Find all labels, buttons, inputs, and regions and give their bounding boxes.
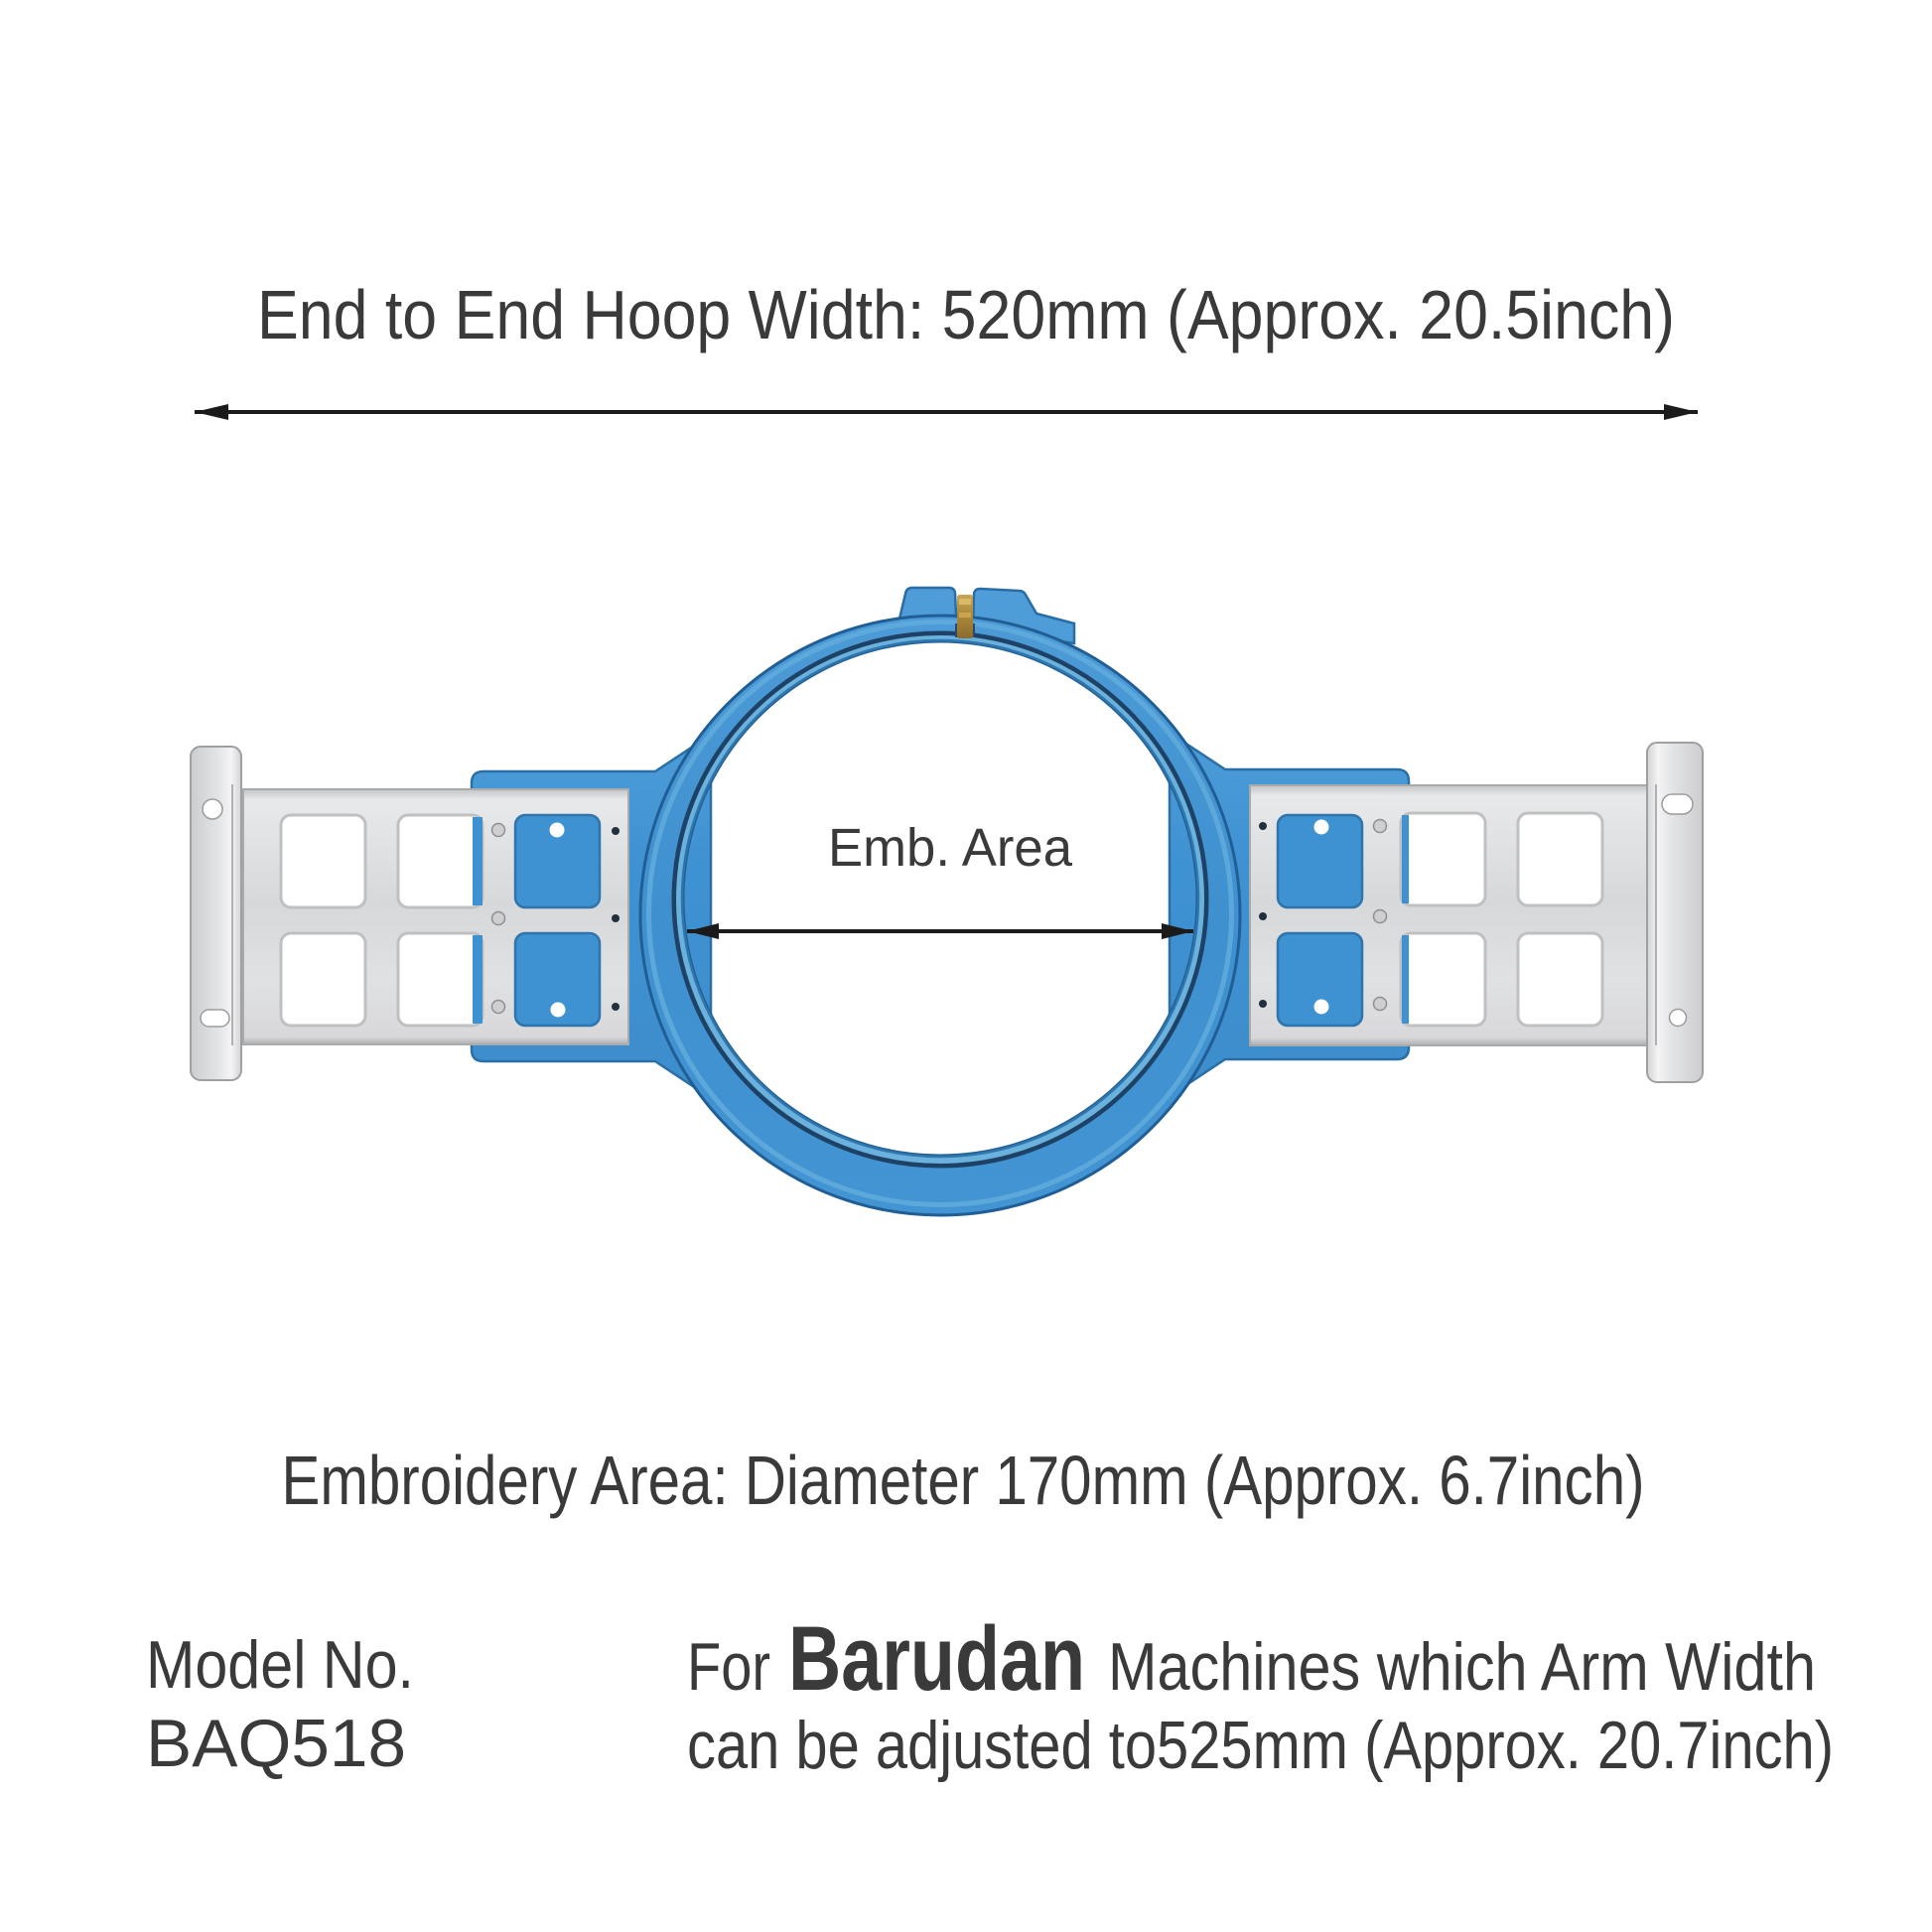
svg-text:Barudan: Barudan	[788, 1608, 1085, 1710]
svg-text:Machines which Arm Width: Machines which Arm Width	[1108, 1629, 1816, 1705]
svg-text:Emb. Area: Emb. Area	[828, 818, 1073, 878]
svg-text:End to End Hoop Width: 520mm (: End to End Hoop Width: 520mm (Approx. 20…	[257, 276, 1675, 353]
svg-text:For: For	[687, 1629, 770, 1705]
svg-text:Model No.: Model No.	[146, 1627, 414, 1703]
svg-text:can be adjusted to525mm (Appro: can be adjusted to525mm (Approx. 20.7inc…	[687, 1708, 1834, 1783]
svg-text:BAQ518: BAQ518	[146, 1706, 406, 1781]
svg-text:Embroidery Area: Diameter 170m: Embroidery Area: Diameter 170mm (Approx.…	[282, 1442, 1645, 1519]
